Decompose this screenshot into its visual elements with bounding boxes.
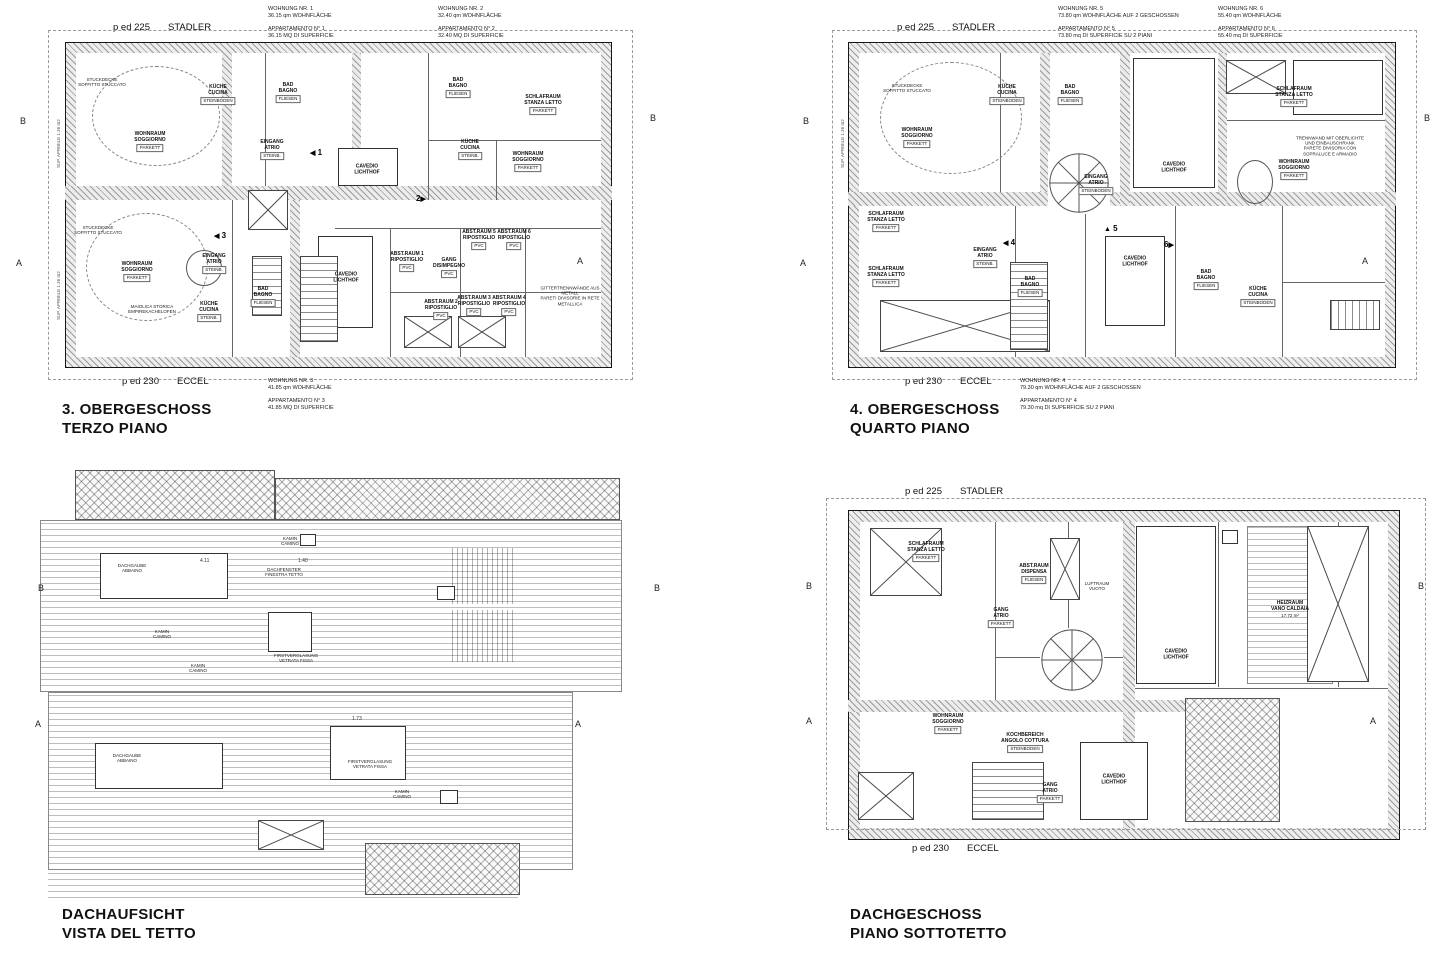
section-marker-B: B <box>654 583 660 593</box>
hatch-shape <box>222 53 232 186</box>
annotation-label: TRENNWAND MIT OBERLICHTEUND EINBAUSCHRAN… <box>1296 136 1364 157</box>
label-line: STANZA LETTO <box>907 548 944 554</box>
floor-material: PARKETT <box>1281 99 1307 107</box>
label-line: RIPOSTIGLIO <box>492 302 526 308</box>
note-line: WOHNUNG NR. 1 <box>268 6 334 13</box>
label-line: VUOTO <box>1085 586 1110 591</box>
label-line: CAMINO <box>153 634 171 639</box>
section-marker-A: A <box>575 719 581 729</box>
hatch-shape <box>1120 53 1130 206</box>
room-label: ABST.RAUM 2RIPOSTIGLIOPVC <box>424 300 458 320</box>
annotation-label: DACHGAUBEABBAINO <box>113 753 142 763</box>
apartment-note: WOHNUNG NR. 136.15 qm WOHNFLÄCHEAPPARTAM… <box>268 6 334 40</box>
parcel-owner-label: p ed 230ECCEL <box>912 843 999 854</box>
label-line: STANZA LETTO <box>867 273 904 279</box>
room-label: EINGANGATRIOSTEINBODEN <box>1078 175 1113 195</box>
box-shape <box>440 790 458 804</box>
room-label: WOHNRAUMSOGGIORNOPARKETT <box>121 262 152 282</box>
room-label: CAVEDIOLICHTHOF <box>333 272 358 283</box>
plan-title-de: DACHGESCHOSS <box>850 905 1007 924</box>
label-line: BAGNO <box>1058 91 1083 97</box>
plan-title-it: VISTA DEL TETTO <box>62 924 196 943</box>
floor-material: STEINB. <box>202 266 226 274</box>
note-line: APPARTAMENTO N° 3 <box>268 398 334 405</box>
note-line: WOHNUNG NR. 5 <box>1058 6 1179 13</box>
label-line: RIPOSTIGLIO <box>462 236 496 242</box>
label-line: CAMINO <box>281 541 299 546</box>
floor-material: PARKETT <box>913 554 939 562</box>
xbox-shape <box>858 772 914 820</box>
text-shape: 1.73 <box>352 716 362 722</box>
room-label: BADBAGNOFLIESEN <box>251 287 276 307</box>
label-line: VETRATA FISSA <box>348 764 392 769</box>
annotation-label: MAIOLICA STORICAEMPIREKACHELOFEN <box>128 304 176 314</box>
label-line: SOFFITTO STUCCATO <box>74 230 122 235</box>
plan-title-it: TERZO PIANO <box>62 419 212 438</box>
label-line: ANGOLO COTTURA <box>1001 739 1049 745</box>
section-marker-A: A <box>1362 256 1368 266</box>
note-line: 79.30 mq DI SUPERFICIE SU 2 PIANI <box>1020 405 1141 412</box>
room-label: GANGDISIMPEGNOPVC <box>433 258 465 278</box>
apartment-note: WOHNUNG NR. 479.30 qm WOHNFLÄCHE AUF 2 G… <box>1020 378 1141 412</box>
note-line: APPARTAMENTO N° 4 <box>1020 398 1141 405</box>
label-line: SOGGIORNO <box>932 720 963 726</box>
label-line: ABBAINO <box>118 568 147 573</box>
room-label: ABST.RAUM 6RIPOSTIGLIOPVC <box>497 230 531 250</box>
room-label: KOCHBEREICHANGOLO COTTURASTEINBODEN <box>1001 733 1049 753</box>
room-label: BADBAGNOFLIESEN <box>1018 277 1043 297</box>
rtext-shape: SUP. APRIBILE 1.36 m2 <box>56 271 61 320</box>
floor-material: PVC <box>466 308 481 316</box>
section-marker-B: B <box>650 113 656 123</box>
section-marker-A: A <box>1370 716 1376 726</box>
label-line: CUCINA <box>1240 293 1275 299</box>
room-label: GANGATRIOPARKETT <box>1037 783 1063 803</box>
room-label: GANGATRIOPARKETT <box>988 608 1014 628</box>
hatch-shape <box>65 186 612 200</box>
marker-number: 5 <box>1111 224 1118 233</box>
floor-material: PARKETT <box>530 107 556 115</box>
label-line: RIPOSTIGLIO <box>390 258 424 264</box>
label-line: RIPOSTIGLIO <box>457 302 491 308</box>
room-label: CAVEDIOLICHTHOF <box>354 164 379 175</box>
triangle-icon: ▲ <box>1104 226 1111 233</box>
vlines-shape <box>452 548 516 604</box>
room-label: ABST.RAUM 5RIPOSTIGLIOPVC <box>462 230 496 250</box>
note-line: 36.15 MQ DI SUPERFICIE <box>268 33 334 40</box>
label-line: STANZA LETTO <box>524 101 561 107</box>
cross-shape <box>365 843 520 895</box>
annotation-label: KAMINCAMINO <box>393 789 411 799</box>
room-label: WOHNRAUMSOGGIORNOPARKETT <box>512 152 543 172</box>
plan-title-de: 3. OBERGESCHOSS <box>62 400 212 419</box>
label-line: BAGNO <box>1194 276 1219 282</box>
stair-run <box>300 256 338 342</box>
room-label: KÜCHECUCINASTEINB. <box>197 302 221 322</box>
label-line: PARETI DIVISORIE IN RETE <box>541 296 600 301</box>
entrance-marker-5: ▲ 5 <box>1104 224 1118 233</box>
box-shape <box>268 612 312 652</box>
box-shape <box>300 534 316 546</box>
room-label: CAVEDIOLICHTHOF <box>1101 774 1126 785</box>
entrance-marker-3: ◀ 3 <box>214 231 226 240</box>
line-shape <box>1227 120 1385 121</box>
floor-material: FLIESEN <box>1018 289 1043 297</box>
rtext-shape: SUP. APRIBILE 1.36 m2 <box>840 119 845 168</box>
plan-title-it: PIANO SOTTOTETTO <box>850 924 1007 943</box>
annotation-label: KAMINCAMINO <box>189 663 207 673</box>
parcel-owner-label: p ed 225STADLER <box>905 486 1003 497</box>
section-marker-A: A <box>800 258 806 268</box>
label-line: STANZA LETTO <box>1275 93 1312 99</box>
label-line: CUCINA <box>197 308 221 314</box>
plan-title-it: QUARTO PIANO <box>850 419 1000 438</box>
room-label: WOHNRAUMSOGGIORNOPARKETT <box>932 714 963 734</box>
line-shape <box>1175 206 1176 357</box>
label-line: VETRATA FISSA <box>274 658 318 663</box>
floor-material: PARKETT <box>873 224 899 232</box>
room-label: SCHLAFRAUMSTANZA LETTOPARKETT <box>907 542 944 562</box>
annotation-label: KAMINCAMINO <box>153 629 171 639</box>
note-line: 36.15 qm WOHNFLÄCHE <box>268 13 334 20</box>
label-line: ATRIO <box>202 260 226 266</box>
label-line: LICHTHOF <box>1122 262 1147 268</box>
triangle-icon: ▶ <box>420 196 425 203</box>
apartment-note: WOHNUNG NR. 573.80 qm WOHNFLÄCHE AUF 2 G… <box>1058 6 1179 40</box>
label-line: ABBAINO <box>113 758 142 763</box>
line-shape <box>496 140 497 200</box>
section-marker-A: A <box>35 719 41 729</box>
room-label: SCHLAFRAUMSTANZA LETTOPARKETT <box>524 95 561 115</box>
annotation-label: STUCKDECKESOFFITTO STUCCATO <box>78 77 126 87</box>
cross-shape <box>75 470 275 520</box>
room-label: WOHNRAUMSOGGIORNOPARKETT <box>1278 160 1309 180</box>
triangle-icon: ▶ <box>1168 242 1173 249</box>
ellipse-shape <box>880 62 1022 174</box>
plan-title-3rd-floor: 3. OBERGESCHOSS TERZO PIANO <box>62 400 212 438</box>
annotation-label: LUFTRAUMVUOTO <box>1085 581 1110 591</box>
label-line: ATRIO <box>988 614 1014 620</box>
section-marker-A: A <box>16 258 22 268</box>
floor-material: STEINBODEN <box>989 97 1024 105</box>
note-line: 41.85 MQ DI SUPERFICIE <box>268 405 334 412</box>
vlines-shape <box>452 610 516 662</box>
room-label: HEIZRAUMVANO CALDAIA17.72 m² <box>1271 601 1309 619</box>
label-line: RIPOSTIGLIO <box>424 306 458 312</box>
label-line: METALLICA <box>541 301 600 306</box>
room-label: EINGANGATRIOSTEINB. <box>202 254 226 274</box>
floor-material: FLIESEN <box>276 95 301 103</box>
spiral-stair <box>1040 628 1104 692</box>
room-label: ABST.RAUM 1RIPOSTIGLIOPVC <box>390 252 424 272</box>
label-line: LICHTHOF <box>354 170 379 176</box>
floor-material: PVC <box>433 312 448 320</box>
room-label: ABST.RAUM 3RIPOSTIGLIOPVC <box>457 296 491 316</box>
annotation-label: FIRSTVERGLASUNGVETRATA FISSA <box>348 759 392 769</box>
label-line: LICHTHOF <box>1163 655 1188 661</box>
text-shape: 1.40 <box>298 558 308 564</box>
owner-name: STADLER <box>960 486 1003 497</box>
floor-material: FLIESEN <box>251 299 276 307</box>
apartment-note: WOHNUNG NR. 341.85 qm WOHNFLÄCHEAPPARTAM… <box>268 378 334 412</box>
note-line: 41.85 qm WOHNFLÄCHE <box>268 385 334 392</box>
plan-title-de: DACHAUFSICHT <box>62 905 196 924</box>
section-marker-A: A <box>806 716 812 726</box>
stair-run <box>1330 300 1380 330</box>
room-label: WOHNRAUMSOGGIORNOPARKETT <box>134 132 165 152</box>
line-shape <box>428 140 601 141</box>
floor-material: STEINB. <box>973 260 997 268</box>
rtext-shape: SUP. APRIBILE 1.36 m2 <box>56 119 61 168</box>
room-label: CAVEDIOLICHTHOF <box>1161 162 1186 173</box>
floor-material: STEINBODEN <box>1240 299 1275 307</box>
frame-shape <box>40 520 622 692</box>
xbox-shape <box>404 316 452 348</box>
floor-material: PVC <box>441 270 456 278</box>
owner-name: ECCEL <box>967 843 999 854</box>
floor-material: PARKETT <box>935 726 961 734</box>
section-marker-A: A <box>577 256 583 266</box>
room-label: SCHLAFRAUMSTANZA LETTOPARKETT <box>867 267 904 287</box>
label-line: DISPENSA <box>1019 570 1048 576</box>
label-line: RIPOSTIGLIO <box>497 236 531 242</box>
label-line: BAGNO <box>276 89 301 95</box>
annotation-label: FIRSTVERGLASUNGVETRATA FISSA <box>274 653 318 663</box>
line-shape <box>1218 522 1219 687</box>
floor-material: STEINBODEN <box>1078 187 1113 195</box>
label-line: LICHTHOF <box>1101 780 1126 786</box>
marker-number: 3 <box>219 231 226 240</box>
plan-title-roof-view: DACHAUFSICHT VISTA DEL TETTO <box>62 905 196 943</box>
label-line: ATRIO <box>1037 789 1063 795</box>
room-label: ABST.RAUM 4RIPOSTIGLIOPVC <box>492 296 526 316</box>
label-line: FINESTRA TETTO <box>265 572 303 577</box>
floor-material: FLIESEN <box>1194 282 1219 290</box>
room-label: SCHLAFRAUMSTANZA LETTOPARKETT <box>867 212 904 232</box>
room-label: KÜCHECUCINASTEINBODEN <box>989 85 1024 105</box>
section-marker-B: B <box>1424 113 1430 123</box>
label-line: CUCINA <box>458 146 482 152</box>
room-label: KÜCHECUCINASTEINBODEN <box>200 85 235 105</box>
ellipse-shape <box>1237 160 1273 204</box>
annotation-label: DACHFENSTERFINESTRA TETTO <box>265 567 303 577</box>
section-marker-B: B <box>1418 581 1424 591</box>
label-line: SOGGIORNO <box>512 158 543 164</box>
room-area: 17.72 m² <box>1271 613 1309 619</box>
annotation-label: STUCKDECKESOFFITTO STUCCATO <box>74 225 122 235</box>
cross-shape <box>275 478 620 520</box>
note-line: WOHNUNG NR. 4 <box>1020 378 1141 385</box>
box-shape <box>95 743 223 789</box>
text-shape: 4.11 <box>200 558 209 564</box>
label-line: SOFFITTO STUCCATO <box>78 82 126 87</box>
plan-title-de: 4. OBERGESCHOSS <box>850 400 1000 419</box>
note-line: 73.80 mq DI SUPERFICIE SU 2 PIANI <box>1058 33 1179 40</box>
entrance-marker-6: 6▶ <box>1164 240 1174 249</box>
label-line: ATRIO <box>973 254 997 260</box>
note-line: 32.40 qm WOHNFLÄCHE <box>438 13 504 20</box>
floor-material: STEINB. <box>197 314 221 322</box>
label-line: CAMINO <box>189 668 207 673</box>
box-shape <box>330 726 406 780</box>
label-line: SOGGIORNO <box>121 268 152 274</box>
label-line: SOGGIORNO <box>901 134 932 140</box>
blueprint-sheet: 3. OBERGESCHOSS TERZO PIANO 4. OBERGESCH… <box>0 0 1440 960</box>
floor-material: FLIESEN <box>1022 576 1047 584</box>
room-label: SCHLAFRAUMSTANZA LETTOPARKETT <box>1275 87 1312 107</box>
label-line: VANO CALDAIA <box>1271 607 1309 613</box>
entrance-marker-1: ◀ 1 <box>310 148 322 157</box>
room-label: CAVEDIOLICHTHOF <box>1122 256 1147 267</box>
floor-material: PARKETT <box>1037 795 1063 803</box>
note-line: 79.30 qm WOHNFLÄCHE AUF 2 GESCHOSSEN <box>1020 385 1141 392</box>
xbox-shape <box>458 316 506 348</box>
floor-material: PARKETT <box>988 620 1014 628</box>
floor-material: PARKETT <box>124 274 150 282</box>
box-shape <box>1105 236 1165 326</box>
line-shape <box>1135 688 1388 689</box>
room-label: KÜCHECUCINASTEINB. <box>458 140 482 160</box>
label-line: SOGGIORNO <box>134 138 165 144</box>
label-line: DISIMPEGNO <box>433 264 465 270</box>
label-line: EMPIREKACHELOFEN <box>128 309 176 314</box>
note-line: 32.40 MQ DI SUPERFICIE <box>438 33 504 40</box>
label-line: SOGGIORNO <box>1278 166 1309 172</box>
floor-material: STEINBODEN <box>1007 745 1042 753</box>
room-label: EINGANGATRIOSTEINB. <box>260 140 284 160</box>
floor-material: FLIESEN <box>446 90 471 98</box>
label-line: CUCINA <box>989 91 1024 97</box>
room-label: ABST.RAUMDISPENSAFLIESEN <box>1019 564 1048 584</box>
room-label: WOHNRAUMSOGGIORNOPARKETT <box>901 128 932 148</box>
room-label: BADBAGNOFLIESEN <box>1058 85 1083 105</box>
note-line: APPARTAMENTO N° 1 <box>268 26 334 33</box>
label-line: PARETE DIVISORIA CON <box>1296 146 1364 151</box>
note-line: APPARTAMENTO N° 2 <box>438 26 504 33</box>
room-label: KÜCHECUCINASTEINBODEN <box>1240 287 1275 307</box>
section-marker-B: B <box>803 116 809 126</box>
marker-number: 4 <box>1008 238 1015 247</box>
note-line: 73.80 qm WOHNFLÄCHE AUF 2 GESCHOSSEN <box>1058 13 1179 20</box>
floor-material: STEINBODEN <box>200 97 235 105</box>
note-line: WOHNUNG NR. 6 <box>1218 6 1283 13</box>
line-shape <box>1085 206 1086 357</box>
floor-material: PVC <box>399 264 414 272</box>
floor-material: PARKETT <box>873 279 899 287</box>
room-label: CAVEDIOLICHTHOF <box>1163 649 1188 660</box>
note-line: WOHNUNG NR. 2 <box>438 6 504 13</box>
floor-material: STEINB. <box>260 152 284 160</box>
label-line: LICHTHOF <box>333 278 358 284</box>
label-line: CAMINO <box>393 794 411 799</box>
label-line: CUCINA <box>200 91 235 97</box>
line-shape <box>1282 282 1385 283</box>
apartment-note: WOHNUNG NR. 655.40 qm WOHNFLÄCHEAPPARTAM… <box>1218 6 1283 40</box>
entrance-marker-2: 2▶ <box>416 194 426 203</box>
section-marker-B: B <box>38 583 44 593</box>
note-line: APPARTAMENTO N° 6 <box>1218 26 1283 33</box>
note-line: WOHNUNG NR. 3 <box>268 378 334 385</box>
apartment-note: WOHNUNG NR. 232.40 qm WOHNFLÄCHEAPPARTAM… <box>438 6 504 40</box>
floor-material: STEINB. <box>458 152 482 160</box>
entrance-marker-4: ◀ 4 <box>1003 238 1015 247</box>
floor-material: PVC <box>501 308 516 316</box>
marker-number: 1 <box>315 148 322 157</box>
box-shape <box>1222 530 1238 544</box>
section-marker-B: B <box>806 581 812 591</box>
stair-run <box>972 762 1044 820</box>
label-line: STANZA LETTO <box>867 218 904 224</box>
room-label: BADBAGNOFLIESEN <box>276 83 301 103</box>
floor-material: PARKETT <box>137 144 163 152</box>
xbox-shape <box>248 190 288 230</box>
label-line: ATRIO <box>1078 181 1113 187</box>
hatch-shape <box>290 200 300 357</box>
parcel-number: p ed 225 <box>905 486 942 497</box>
label-line: BAGNO <box>251 293 276 299</box>
xbox-shape <box>1050 538 1080 600</box>
annotation-label: STUCKDECKESOFFITTO STUCCATO <box>883 83 931 93</box>
xbox-shape <box>1307 526 1369 682</box>
floor-material: PARKETT <box>1281 172 1307 180</box>
plan-title-4th-floor: 4. OBERGESCHOSS QUARTO PIANO <box>850 400 1000 438</box>
parcel-number: p ed 230 <box>912 843 949 854</box>
plan-title-attic: DACHGESCHOSS PIANO SOTTOTETTO <box>850 905 1007 943</box>
floor-material: PARKETT <box>515 164 541 172</box>
label-line: SOFFITTO STUCCATO <box>883 88 931 93</box>
section-marker-B: B <box>20 116 26 126</box>
floor-material: PVC <box>506 242 521 250</box>
room-label: EINGANGATRIOSTEINB. <box>973 248 997 268</box>
label-line: ATRIO <box>260 146 284 152</box>
annotation-label: GITTERTRENNWÄNDE AUSMETALLPARETI DIVISOR… <box>541 286 600 307</box>
xbox-shape <box>870 528 942 596</box>
room-label: BADBAGNOFLIESEN <box>446 78 471 98</box>
annotation-label: KAMINCAMINO <box>281 536 299 546</box>
note-line: 55.40 mq DI SUPERFICIE <box>1218 33 1283 40</box>
label-line: SOPRALUCE E ARMADIO <box>1296 151 1364 156</box>
floor-material: PVC <box>471 242 486 250</box>
note-line: APPARTAMENTO N° 5 <box>1058 26 1179 33</box>
line-shape <box>428 53 429 200</box>
floor-material: PARKETT <box>904 140 930 148</box>
line-shape <box>232 200 233 357</box>
hatch-shape <box>848 700 1188 712</box>
floor-material: FLIESEN <box>1058 97 1083 105</box>
line-shape <box>265 53 266 186</box>
xbox-shape <box>258 820 324 850</box>
label-line: BAGNO <box>1018 283 1043 289</box>
note-line: 55.40 qm WOHNFLÄCHE <box>1218 13 1283 20</box>
room-label: BADBAGNOFLIESEN <box>1194 270 1219 290</box>
label-line: BAGNO <box>446 84 471 90</box>
box-shape <box>437 586 455 600</box>
cross-shape <box>1185 698 1280 822</box>
label-line: LICHTHOF <box>1161 168 1186 174</box>
annotation-label: DACHGAUBEABBAINO <box>118 563 147 573</box>
